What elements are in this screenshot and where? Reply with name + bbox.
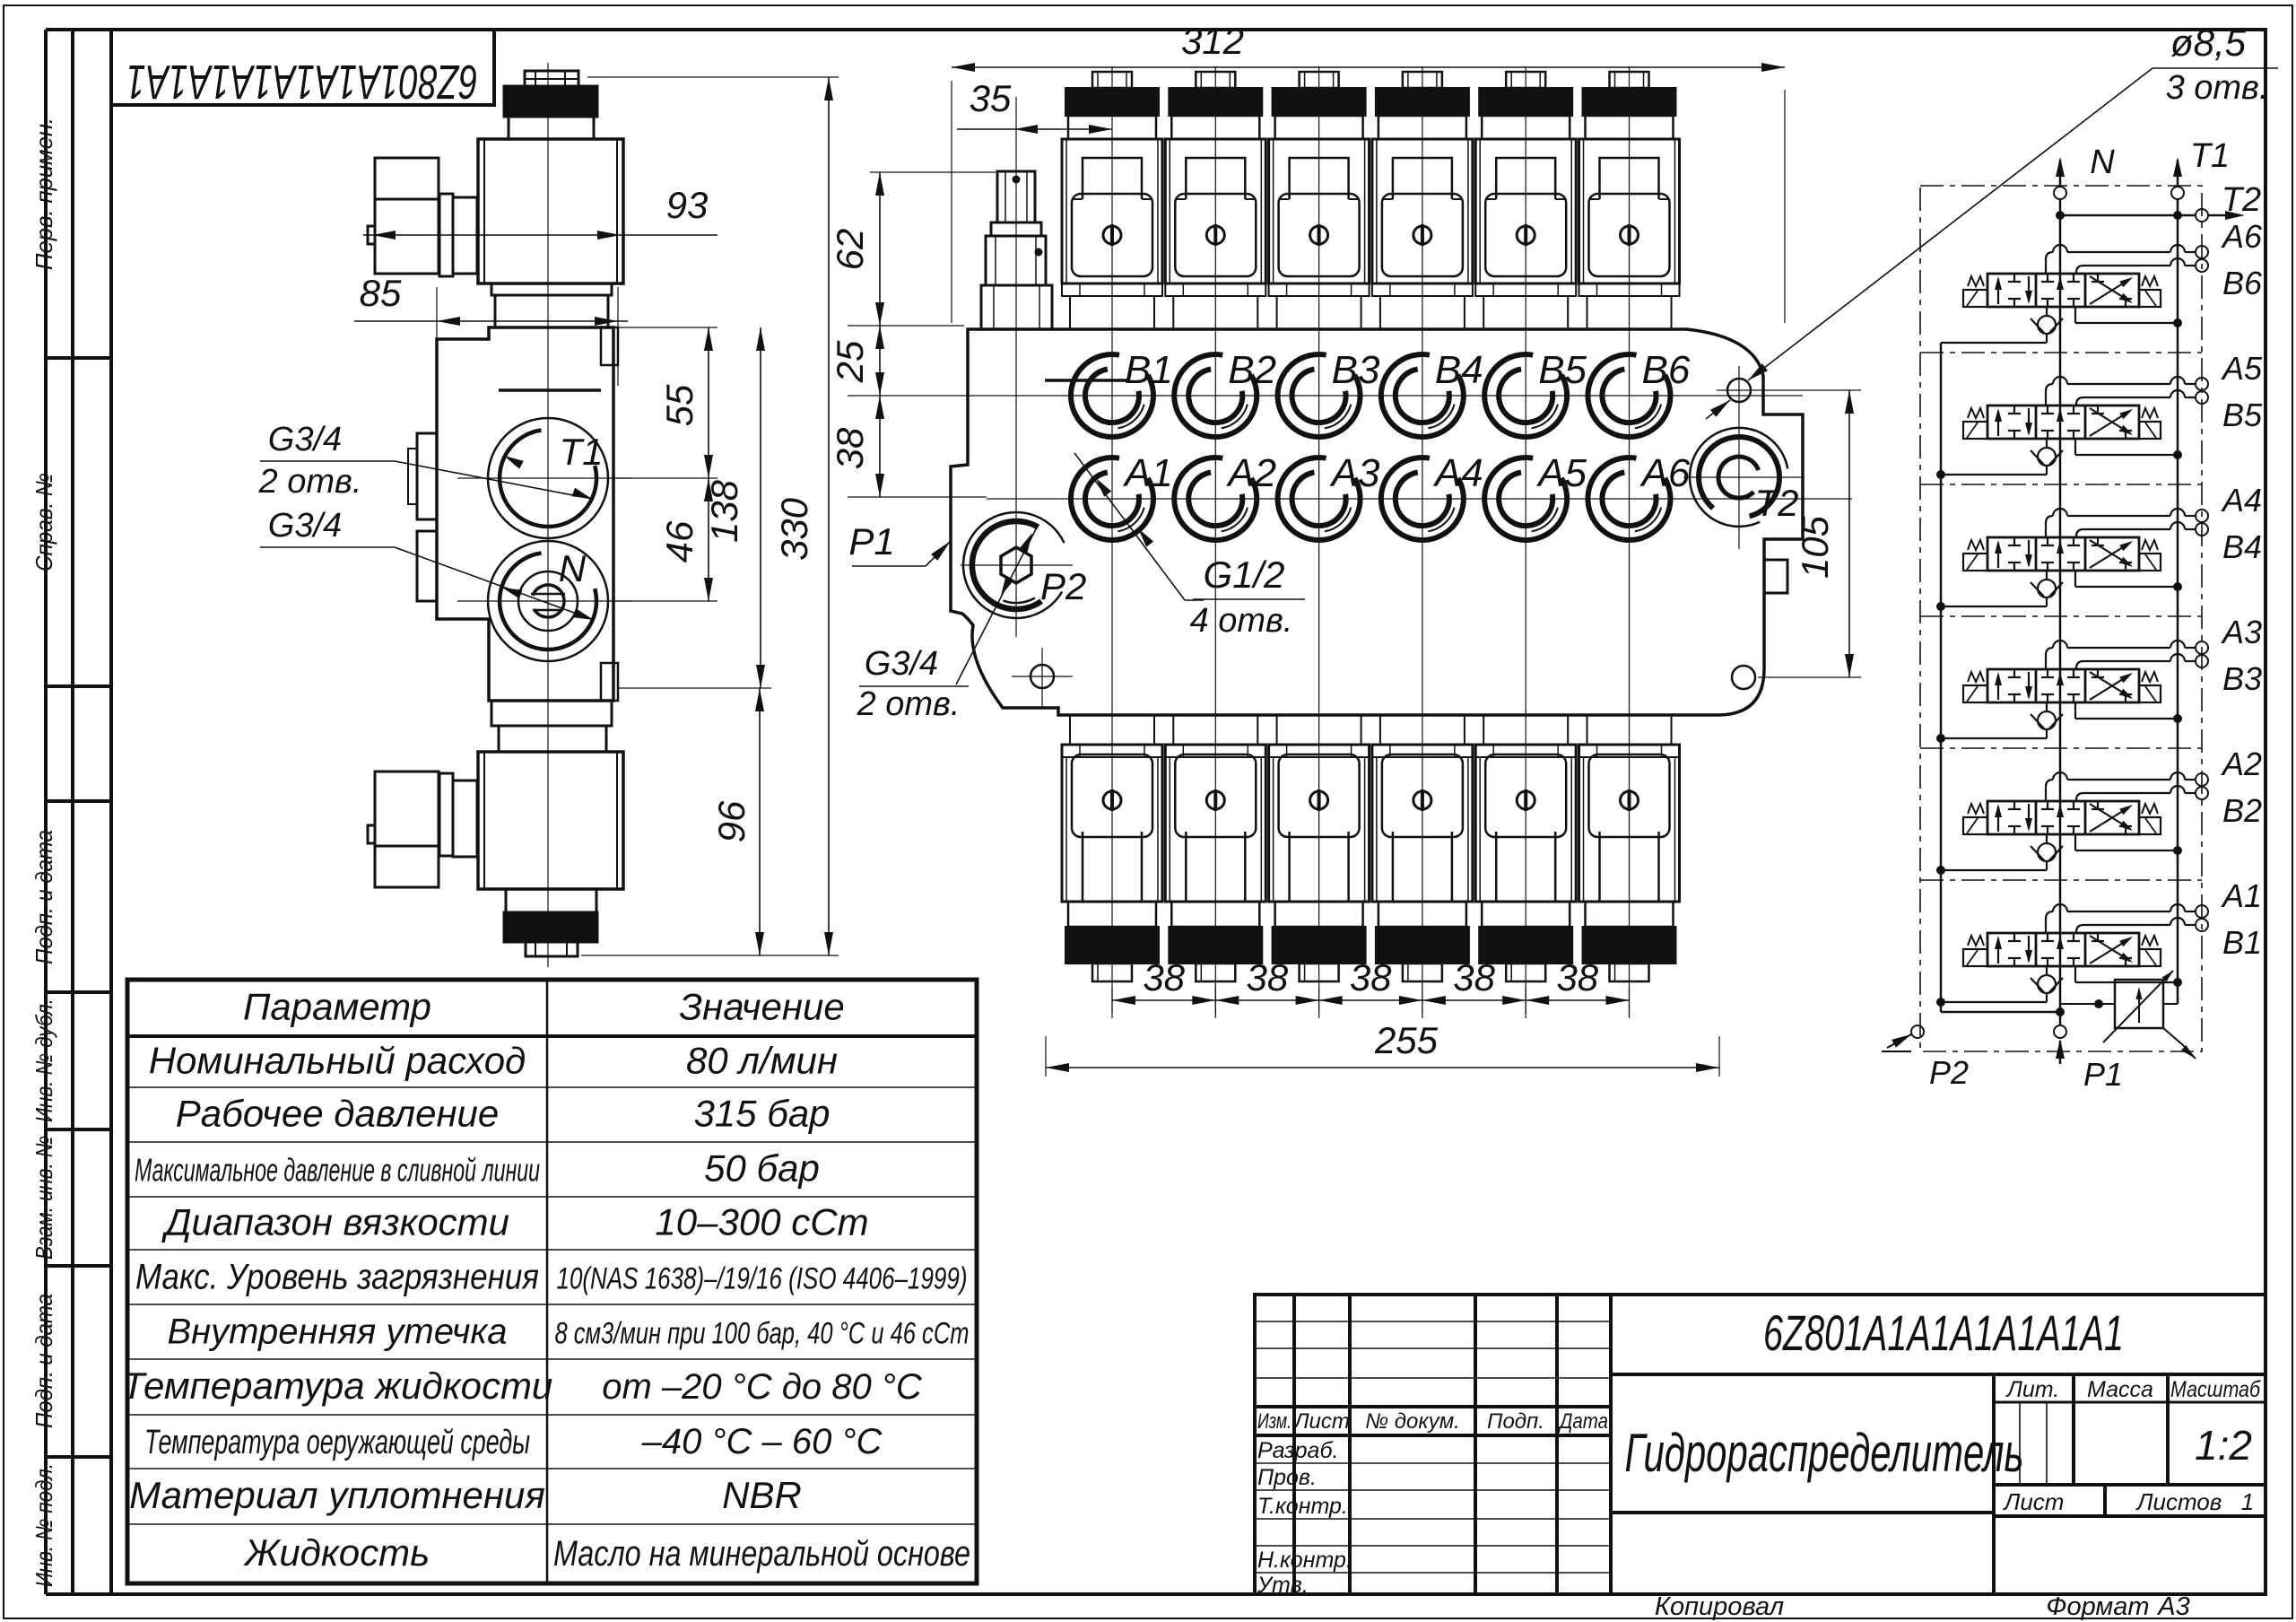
svg-text:B3: B3 xyxy=(1332,348,1380,392)
svg-text:255: 255 xyxy=(1374,1019,1439,1061)
svg-text:85: 85 xyxy=(360,272,402,314)
svg-text:80 л/мин: 80 л/мин xyxy=(686,1040,838,1082)
svg-text:A4: A4 xyxy=(2221,482,2262,519)
svg-text:Параметр: Параметр xyxy=(243,986,431,1028)
svg-text:Масштаб: Масштаб xyxy=(2170,1377,2261,1402)
svg-text:B5: B5 xyxy=(1538,348,1587,392)
svg-text:G3/4: G3/4 xyxy=(865,645,938,683)
svg-text:А3: А3 xyxy=(2156,1592,2189,1621)
svg-text:A1: A1 xyxy=(2221,877,2262,914)
svg-text:Подп. и дата: Подп. и дата xyxy=(30,1294,57,1428)
svg-text:A2: A2 xyxy=(2221,746,2262,782)
svg-text:38: 38 xyxy=(1350,956,1392,998)
svg-text:96: 96 xyxy=(710,800,752,842)
svg-text:B1: B1 xyxy=(2222,924,2262,961)
svg-text:–40 °С – 60 °С: –40 °С – 60 °С xyxy=(641,1422,883,1461)
svg-text:B2: B2 xyxy=(2222,792,2262,829)
svg-text:A2: A2 xyxy=(1225,451,1276,495)
svg-text:Инв. № дубл.: Инв. № дубл. xyxy=(30,998,57,1122)
svg-text:A3: A3 xyxy=(2221,614,2262,650)
svg-text:A5: A5 xyxy=(1535,451,1587,495)
svg-text:93: 93 xyxy=(666,184,709,226)
svg-text:1: 1 xyxy=(2241,1488,2254,1515)
svg-text:P2: P2 xyxy=(1040,565,1086,607)
svg-text:35: 35 xyxy=(970,77,1012,119)
svg-text:P2: P2 xyxy=(1929,1054,1969,1091)
svg-text:Копировал: Копировал xyxy=(1655,1592,1784,1621)
svg-text:B3: B3 xyxy=(2222,660,2262,697)
svg-text:330: 330 xyxy=(773,497,815,561)
svg-text:Масса: Масса xyxy=(2087,1377,2153,1402)
svg-text:3 отв.: 3 отв. xyxy=(2166,69,2269,107)
svg-text:Лит.: Лит. xyxy=(2005,1377,2060,1402)
svg-text:Диапазон вязкости: Диапазон вязкости xyxy=(161,1201,509,1243)
svg-text:Разраб.: Разраб. xyxy=(1257,1438,1338,1463)
svg-text:62: 62 xyxy=(829,229,871,271)
svg-text:312: 312 xyxy=(1181,20,1244,62)
svg-text:10(NAS 1638)–/19/16 (ISO 4406–: 10(NAS 1638)–/19/16 (ISO 4406–1999) xyxy=(557,1262,968,1296)
svg-text:Изм.: Изм. xyxy=(1257,1409,1291,1434)
svg-text:A1: A1 xyxy=(1122,451,1173,495)
svg-text:Пров.: Пров. xyxy=(1257,1465,1317,1490)
svg-text:Материал уплотнения: Материал уплотнения xyxy=(129,1474,545,1516)
svg-text:T1: T1 xyxy=(559,431,603,473)
svg-text:8 см3/мин при 100 бар, 40 °С и: 8 см3/мин при 100 бар, 40 °С и 46 сСт xyxy=(555,1317,970,1351)
svg-text:25: 25 xyxy=(829,340,871,383)
svg-text:G1/2: G1/2 xyxy=(1203,554,1284,596)
svg-text:A6: A6 xyxy=(1639,451,1691,495)
svg-text:B2: B2 xyxy=(1228,348,1276,392)
svg-text:G3/4: G3/4 xyxy=(268,507,342,545)
svg-text:Взам. инв. №: Взам. инв. № xyxy=(30,1136,57,1260)
svg-text:6Z801A1A1A1A1A1A1: 6Z801A1A1A1A1A1A1 xyxy=(126,55,478,109)
svg-text:NBR: NBR xyxy=(722,1474,802,1516)
svg-text:Инв. № подл.: Инв. № подл. xyxy=(30,1463,57,1587)
svg-text:Масло на минеральной основе: Масло на минеральной основе xyxy=(553,1534,970,1574)
svg-text:B5: B5 xyxy=(2222,397,2263,433)
svg-text:38: 38 xyxy=(1556,956,1598,998)
svg-text:38: 38 xyxy=(1247,956,1289,998)
svg-text:B4: B4 xyxy=(2222,528,2262,565)
svg-text:T2: T2 xyxy=(1754,482,1798,524)
svg-text:P1: P1 xyxy=(848,520,894,562)
svg-text:B1: B1 xyxy=(1125,348,1173,392)
svg-text:Максимальное давление в сливно: Максимальное давление в сливной линии xyxy=(135,1152,540,1189)
svg-text:Рабочее давление: Рабочее давление xyxy=(176,1093,500,1135)
svg-text:Значение: Значение xyxy=(679,986,844,1028)
svg-text:A3: A3 xyxy=(1329,451,1380,495)
svg-text:A5: A5 xyxy=(2221,350,2263,387)
svg-text:Дата: Дата xyxy=(1557,1409,1608,1434)
svg-text:от –20 °С до 80 °С: от –20 °С до 80 °С xyxy=(602,1367,923,1407)
svg-text:38: 38 xyxy=(829,427,871,469)
svg-text:105: 105 xyxy=(1794,515,1836,579)
svg-text:Макс. Уровень загрязнения: Макс. Уровень загрязнения xyxy=(135,1258,539,1297)
svg-text:Температура оеружающей среды: Температура оеружающей среды xyxy=(144,1424,530,1461)
svg-text:2 отв.: 2 отв. xyxy=(857,685,961,723)
svg-text:2 отв.: 2 отв. xyxy=(258,463,362,501)
svg-text:P1: P1 xyxy=(2083,1056,2123,1093)
svg-text:55: 55 xyxy=(658,384,700,426)
svg-text:Утв.: Утв. xyxy=(1257,1573,1309,1598)
svg-text:B6: B6 xyxy=(1642,348,1691,392)
svg-text:Перв. примен.: Перв. примен. xyxy=(30,118,57,270)
svg-text:Лист: Лист xyxy=(2003,1488,2065,1515)
svg-text:T1: T1 xyxy=(2190,137,2230,175)
svg-text:138: 138 xyxy=(703,479,745,543)
svg-text:Т.контр.: Т.контр. xyxy=(1257,1494,1348,1519)
svg-text:38: 38 xyxy=(1143,956,1185,998)
svg-text:Листов: Листов xyxy=(2135,1488,2222,1515)
svg-text:№ докум.: № докум. xyxy=(1365,1409,1460,1434)
svg-text:Температура жидкости: Температура жидкости xyxy=(122,1365,553,1407)
svg-text:Справ. №: Справ. № xyxy=(30,473,57,571)
svg-text:Гидрораспределитель: Гидрораспределитель xyxy=(1625,1423,2024,1483)
svg-text:G3/4: G3/4 xyxy=(268,421,342,458)
svg-text:Формат: Формат xyxy=(2046,1592,2149,1621)
svg-text:38: 38 xyxy=(1453,956,1495,998)
svg-text:T2: T2 xyxy=(2222,181,2261,219)
svg-text:A6: A6 xyxy=(2221,218,2263,255)
svg-text:6Z801A1A1A1A1A1A1: 6Z801A1A1A1A1A1A1 xyxy=(1763,1304,2124,1361)
svg-text:A4: A4 xyxy=(1432,451,1483,495)
svg-text:B6: B6 xyxy=(2222,265,2263,301)
svg-text:46: 46 xyxy=(658,520,700,562)
svg-text:ø8,5: ø8,5 xyxy=(2170,22,2247,64)
svg-text:315 бар: 315 бар xyxy=(693,1093,830,1135)
svg-text:50 бар: 50 бар xyxy=(704,1147,820,1190)
svg-text:1:2: 1:2 xyxy=(2195,1422,2252,1469)
svg-text:10–300 сСт: 10–300 сСт xyxy=(655,1201,868,1243)
svg-text:Жидкость: Жидкость xyxy=(243,1531,430,1574)
svg-text:Подп. и дата: Подп. и дата xyxy=(30,830,57,964)
svg-text:4 отв.: 4 отв. xyxy=(1190,602,1293,640)
svg-text:Н.контр.: Н.контр. xyxy=(1257,1548,1352,1573)
svg-text:Подп.: Подп. xyxy=(1487,1409,1544,1434)
svg-text:N: N xyxy=(559,547,587,589)
svg-text:Номинальный расход: Номинальный расход xyxy=(149,1040,526,1082)
svg-text:N: N xyxy=(2090,144,2115,181)
svg-text:Лист: Лист xyxy=(1292,1409,1350,1434)
svg-text:B4: B4 xyxy=(1435,348,1483,392)
svg-text:Внутренняя утечка: Внутренняя утечка xyxy=(167,1312,507,1352)
